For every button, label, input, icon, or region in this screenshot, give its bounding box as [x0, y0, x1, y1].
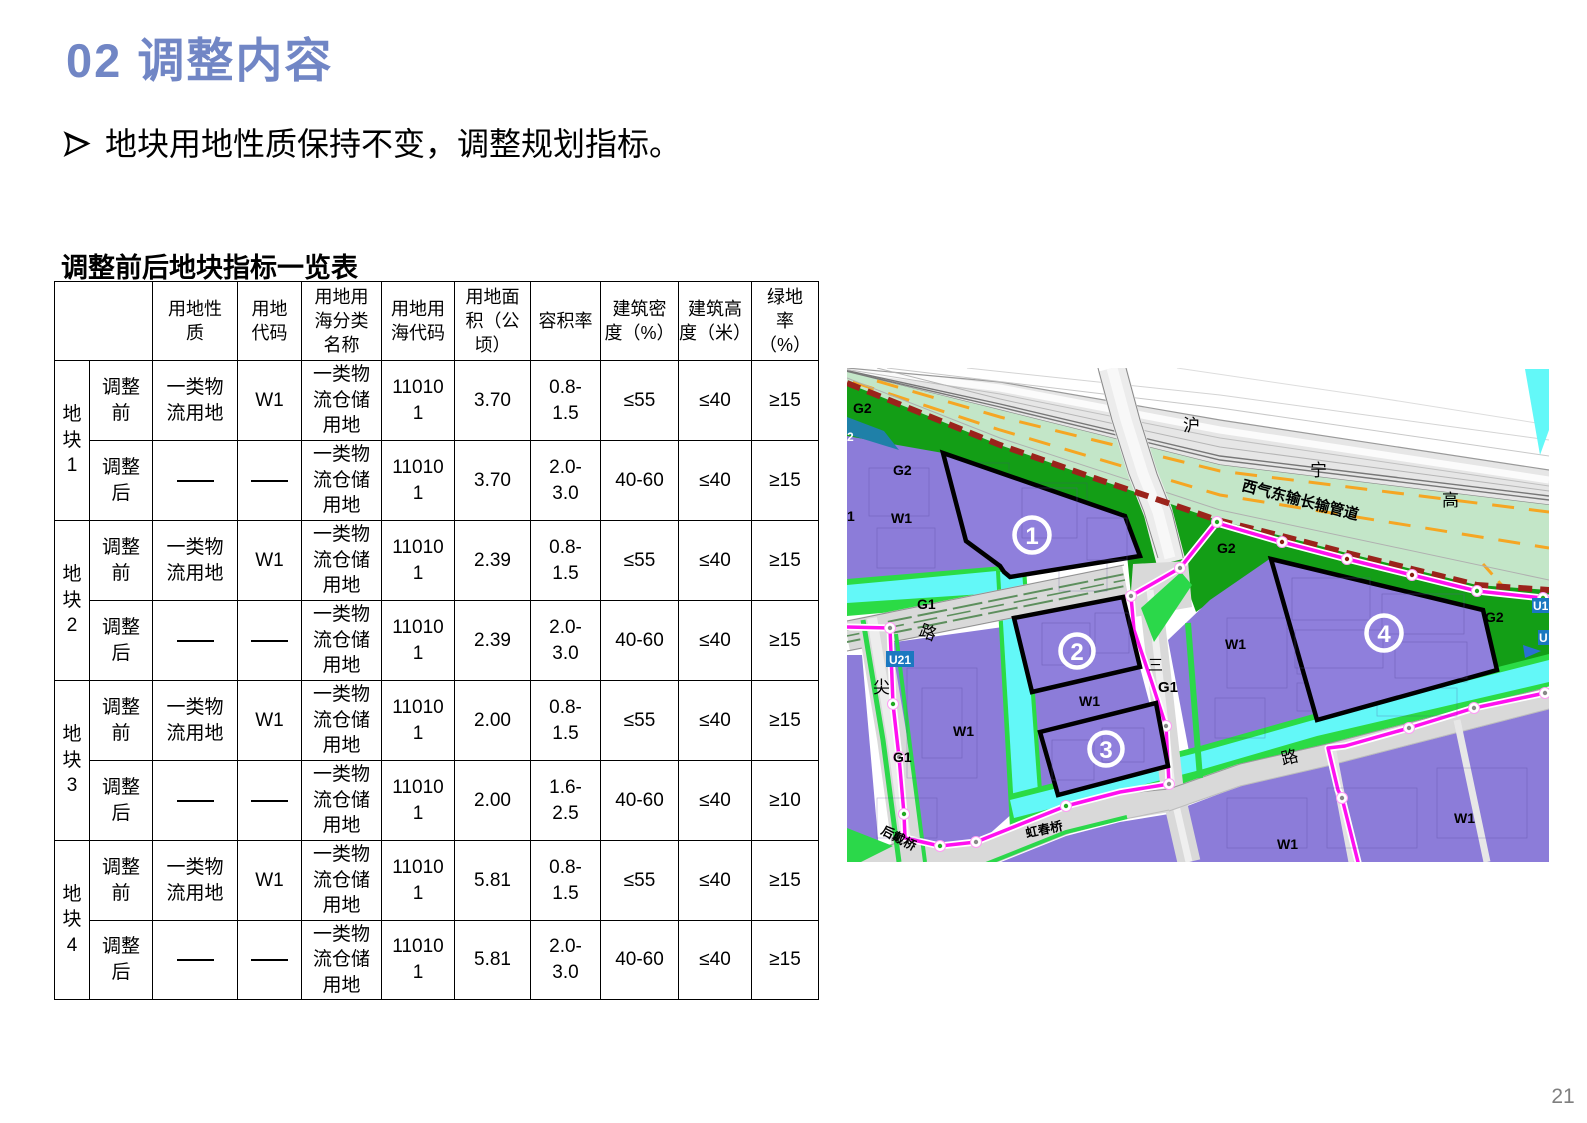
svg-text:2: 2	[1070, 639, 1083, 666]
svg-text:G2: G2	[1217, 540, 1236, 556]
svg-text:G1: G1	[1158, 679, 1178, 696]
svg-text:G1: G1	[893, 749, 912, 765]
svg-text:G2: G2	[893, 462, 912, 478]
svg-text:尖: 尖	[873, 678, 890, 697]
svg-text:三: 三	[1148, 657, 1163, 674]
svg-text:G2: G2	[853, 400, 872, 416]
svg-text:1: 1	[847, 508, 855, 524]
svg-text:U: U	[1539, 631, 1548, 645]
svg-text:G2: G2	[1485, 609, 1504, 625]
svg-text:W1: W1	[891, 510, 912, 526]
svg-text:G1: G1	[917, 596, 936, 612]
svg-text:宁: 宁	[1310, 461, 1327, 480]
svg-text:W1: W1	[1225, 636, 1246, 652]
svg-text:W1: W1	[953, 723, 974, 739]
svg-text:U1: U1	[1533, 599, 1549, 613]
svg-text:W1: W1	[1454, 810, 1475, 826]
svg-text:高: 高	[1442, 491, 1459, 510]
svg-text:沪: 沪	[1183, 416, 1200, 435]
svg-text:1: 1	[1025, 523, 1038, 550]
svg-text:3: 3	[1099, 737, 1112, 764]
svg-text:W1: W1	[1079, 693, 1100, 709]
svg-text:U21: U21	[889, 653, 911, 667]
svg-text:W1: W1	[1277, 836, 1298, 852]
svg-text:4: 4	[1377, 621, 1391, 648]
svg-text:2: 2	[847, 430, 854, 444]
